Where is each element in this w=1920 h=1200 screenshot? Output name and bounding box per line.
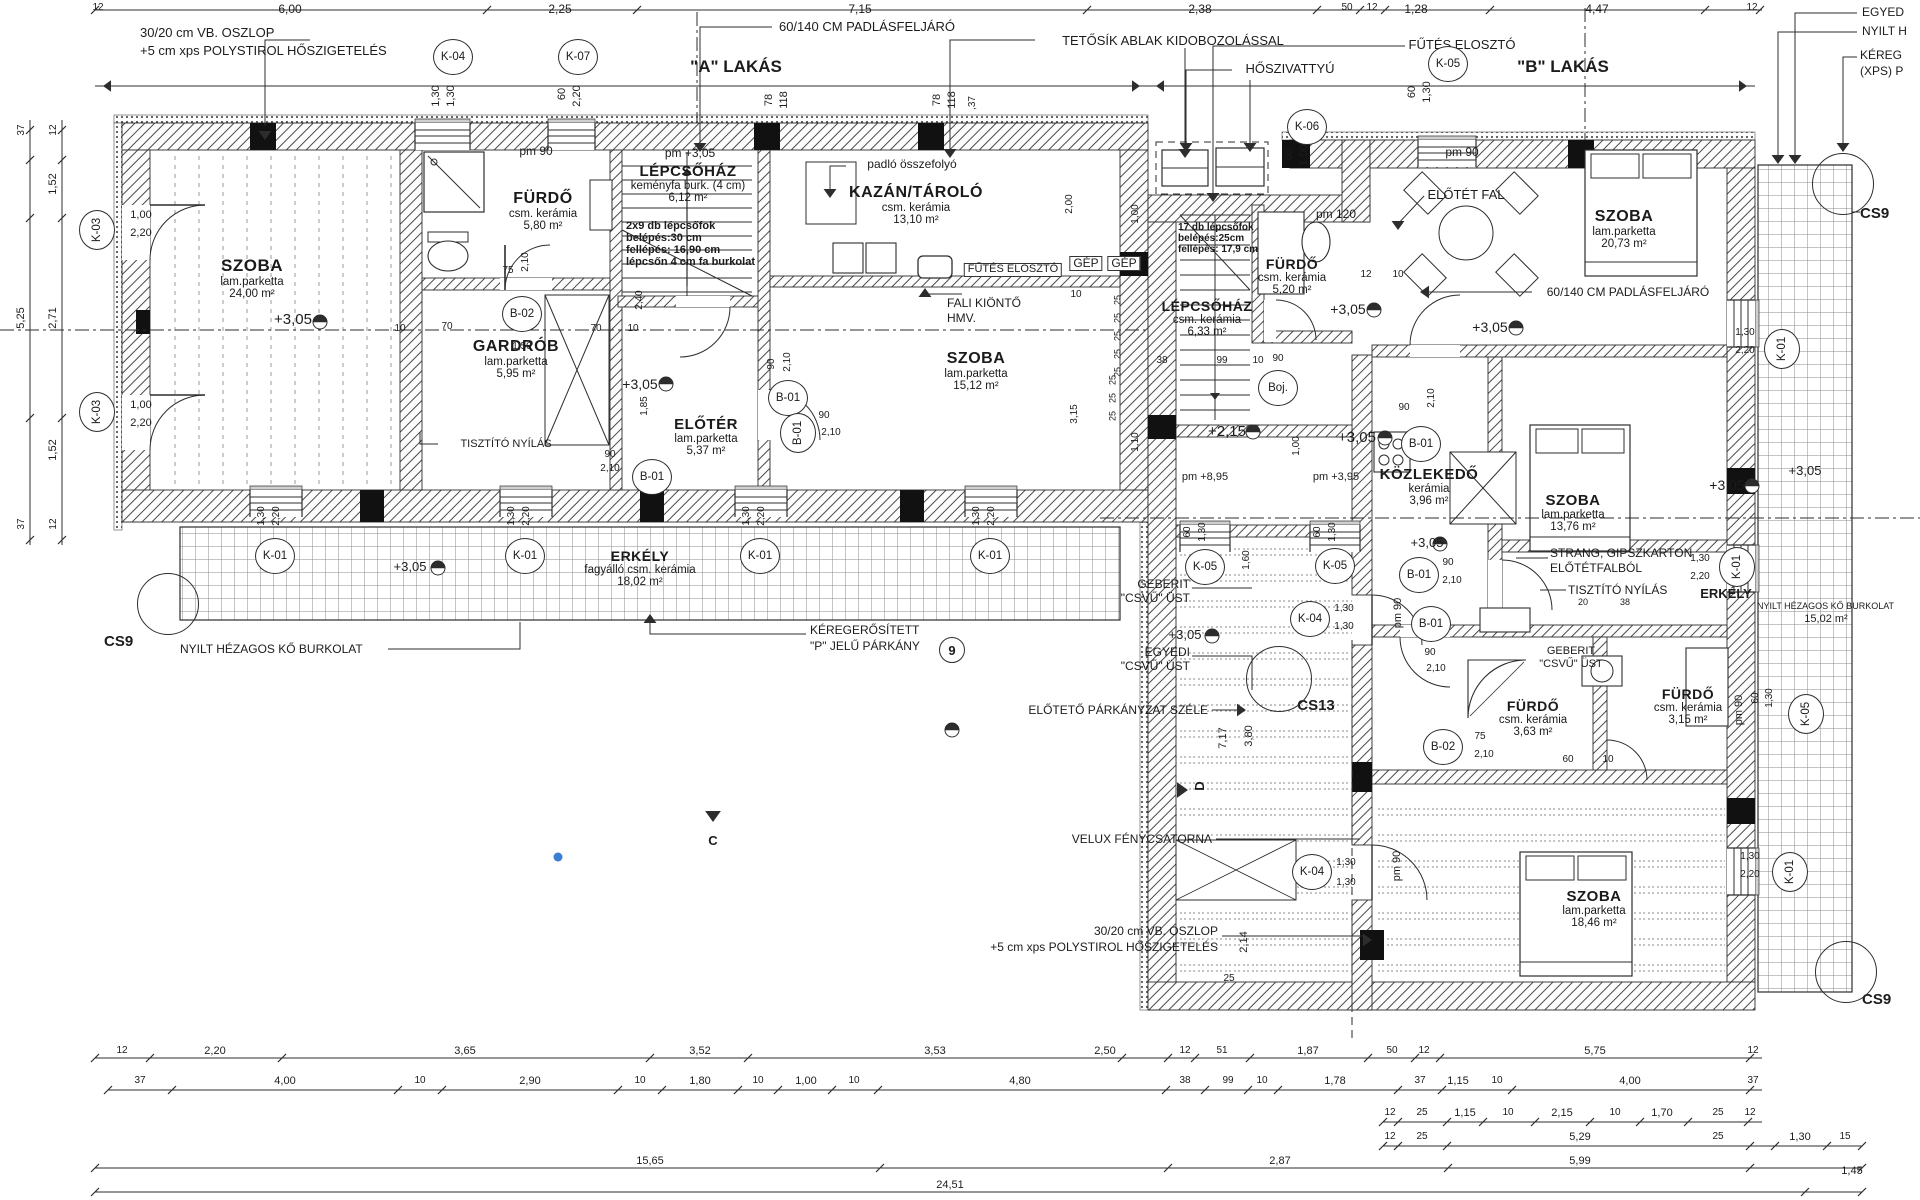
- reference-marker: B-01: [1399, 557, 1439, 593]
- room-name: SZOBA: [1592, 208, 1655, 226]
- annotation-label: 30/20 cm VB. OSZLOP: [1094, 925, 1218, 938]
- dimension-label: 90: [604, 450, 615, 461]
- dimension-label: 12: [1179, 1046, 1190, 1057]
- dimension-label: 118: [947, 91, 959, 109]
- dimension-label: 12: [1384, 1108, 1395, 1119]
- annotation-label: "CSVŰ" ÜST: [1121, 592, 1190, 605]
- dimension-label: 25: [1113, 331, 1122, 341]
- reference-marker: K-05: [1185, 549, 1225, 585]
- dimension-label: 2,20: [130, 418, 151, 430]
- stair-note-line: fellépés: 16,90 cm: [626, 244, 755, 256]
- dimension-label: 10: [1491, 1076, 1502, 1087]
- dimension-label: 25: [1712, 1132, 1723, 1143]
- dimension-label: 25: [1108, 393, 1117, 403]
- reference-marker: K-05: [1428, 46, 1468, 82]
- dimension-label: 10: [1602, 755, 1613, 766]
- dimension-label: 1,00: [1299, 144, 1311, 165]
- dimension-label: 15: [1839, 1132, 1850, 1143]
- annotation-label: HMV.: [947, 312, 976, 325]
- annotation-label: pm +3,95: [1313, 472, 1359, 484]
- dimension-label: 99: [1222, 1076, 1233, 1087]
- dimension-label: pm 90: [1393, 598, 1405, 629]
- dimension-label: 3,53: [924, 1046, 945, 1058]
- dimension-label: 75: [1474, 732, 1485, 743]
- annotation-label: "CSVŰ" ÜST: [1121, 660, 1190, 673]
- annotation-label: ERKÉLY: [1700, 587, 1752, 601]
- annotation-label: +3,05: [1709, 478, 1744, 493]
- dimension-label: 1,15: [1454, 1108, 1475, 1120]
- annotation-label: 2,38: [1188, 3, 1211, 16]
- annotation-label: GÉP: [1069, 256, 1102, 271]
- dimension-label: 1,78: [1324, 1076, 1345, 1088]
- room-area: 6,12 m²: [631, 192, 745, 204]
- dimension-label: 1,30: [1789, 1132, 1810, 1144]
- detail-circle: [1815, 941, 1877, 1003]
- dimension-label: 2,10: [1474, 750, 1493, 761]
- room-name: SZOBA: [944, 350, 1007, 368]
- reference-marker: K-05: [1315, 548, 1355, 584]
- dimension-label: 1,52: [48, 439, 60, 460]
- annotation-label: "A" LAKÁS: [690, 58, 782, 76]
- annotation-label: 12: [1746, 3, 1757, 14]
- annotation-label: EGYED: [1862, 6, 1904, 19]
- dimension-label: 2,20: [757, 506, 768, 525]
- dimension-label: 70: [441, 322, 452, 333]
- annotation-label: HŐSZIVATTYÚ: [1245, 62, 1334, 76]
- dimension-label: 1,30: [1735, 328, 1754, 339]
- dimension-label: 25: [1223, 974, 1234, 985]
- room-name: LÉPCSŐHÁZ: [1162, 298, 1253, 314]
- dimension-label: 25: [1416, 1132, 1427, 1143]
- dimension-label: 12: [116, 1046, 127, 1057]
- dimension-label: 1,00: [795, 1076, 816, 1088]
- dimension-label: 2,10: [1442, 576, 1461, 587]
- room-label: SZOBAlam.parketta18,46 m²: [1562, 888, 1625, 929]
- annotation-label: pm 90: [1445, 146, 1478, 159]
- dimension-label: 24,51: [936, 1180, 964, 1192]
- dimension-label: 37: [17, 518, 28, 529]
- dimension-label: 3,52: [689, 1046, 710, 1058]
- annotation-label: +5 cm xps POLYSTIROL HŐSZIGETELÉS: [990, 941, 1218, 954]
- room-area: 13,76 m²: [1541, 521, 1604, 533]
- stair-note: 17 db lépcsőfokbelépés:25cmfellépés: 17,…: [1178, 222, 1258, 255]
- dimension-label: 2,87: [1269, 1156, 1290, 1168]
- dimension-label: 1,30: [431, 85, 443, 106]
- dimension-label: 1,00: [1131, 204, 1142, 223]
- dimension-label: 2,20: [987, 506, 998, 525]
- dimension-label: 10: [1070, 290, 1081, 301]
- dimension-label: 25: [1113, 295, 1122, 305]
- dimension-label: 1,30: [1765, 688, 1776, 707]
- room-area: 5,37 m²: [674, 445, 738, 457]
- dimension-label: 2,90: [519, 1076, 540, 1088]
- annotation-label: "CSVŰ" ÜST: [1539, 659, 1602, 671]
- blue-dot: [554, 853, 563, 862]
- reference-marker: B-01: [1411, 606, 1451, 642]
- annotation-label: GEBERIT: [1137, 578, 1190, 591]
- dimension-label: 25: [1108, 375, 1117, 385]
- room-label: KÖZLEKEDŐkerámia3,96 m²: [1380, 466, 1479, 507]
- annotation-label: 12: [92, 3, 103, 14]
- dimension-label: 2,20: [1690, 572, 1709, 583]
- dimension-label: 2,10: [783, 352, 794, 371]
- room-name: KÖZLEKEDŐ: [1380, 466, 1479, 483]
- reference-marker: K-03: [79, 392, 115, 432]
- reference-marker: K-04: [1290, 601, 1330, 637]
- detail-circle: [137, 573, 199, 635]
- dimension-label: 78: [932, 94, 944, 106]
- annotation-label: pm 120: [1316, 208, 1356, 221]
- room-finish: kerámia: [1380, 483, 1479, 495]
- annotation-label: GÉP: [1107, 256, 1140, 271]
- room-area: 18,02 m²: [584, 576, 695, 588]
- dimension-label: 2,20: [272, 506, 283, 525]
- dimension-label: 1,85: [640, 396, 651, 415]
- reference-marker: B-01: [768, 380, 808, 416]
- dimension-label: 12: [1360, 270, 1371, 281]
- annotation-label: CS9: [1860, 206, 1889, 222]
- dimension-label: 99: [1216, 356, 1227, 367]
- dimension-label: 10: [634, 1076, 645, 1087]
- dimension-label: 25: [1108, 411, 1117, 421]
- dimension-label: 2,14: [1239, 931, 1251, 952]
- dimension-label: 60: [1407, 86, 1419, 98]
- dimension-label: 75: [502, 266, 513, 277]
- dimension-label: 1,30: [1328, 522, 1339, 541]
- room-finish: lam.parketta: [674, 433, 738, 445]
- reference-marker: 9: [939, 637, 965, 663]
- dimension-label: 1,87: [1297, 1046, 1318, 1058]
- detail-circle: [1812, 153, 1874, 215]
- dimension-label: 60: [557, 88, 569, 100]
- room-area: 24,00 m²: [220, 288, 283, 300]
- dimension-label: 10: [1392, 270, 1403, 281]
- annotation-label: +3,05: [1472, 320, 1507, 335]
- room-area: 20,73 m²: [1592, 238, 1655, 250]
- room-name: ERKÉLY: [584, 548, 695, 564]
- dimension-label: 2,50: [1094, 1046, 1115, 1058]
- annotation-label: FALI KIÖNTŐ: [947, 297, 1021, 310]
- stair-note-line: lépcsőn 4 cm fa burkolat: [626, 256, 755, 268]
- dimension-label: 1,10: [1131, 432, 1142, 451]
- reference-marker: K-06: [1287, 109, 1327, 145]
- dimension-label: 3,65: [454, 1046, 475, 1058]
- annotation-label: TISZTÍTÓ NYÍLÁS: [460, 439, 551, 451]
- annotation-label: ELŐTETŐ PÁRKÁNYZAT SZÉLE: [1028, 704, 1208, 717]
- dimension-label: 5,29: [1569, 1132, 1590, 1144]
- dimension-label: 2,10: [521, 252, 532, 271]
- dimension-label: 60: [1183, 526, 1194, 537]
- room-area: 15,12 m²: [944, 380, 1007, 392]
- dimension-label: 60: [1313, 526, 1324, 537]
- dimension-label: 90: [767, 358, 778, 369]
- stair-note: 2x9 db lépcsőfokbelépés:30 cmfellépés: 1…: [626, 220, 755, 268]
- annotation-label: pm 90: [519, 145, 552, 158]
- annotation-label: 12: [1366, 3, 1377, 14]
- dimension-label: pm 90: [1734, 695, 1746, 726]
- dimension-label: 90: [1442, 558, 1453, 569]
- room-label: SZOBAlam.parketta15,12 m²: [944, 350, 1007, 392]
- room-label: ERKÉLYfagyálló csm. kerámia18,02 m²: [584, 548, 695, 588]
- annotation-label: (XPS) P: [1860, 65, 1903, 78]
- annotation-label: CS9: [104, 634, 133, 650]
- dimension-label: 4,80: [1009, 1076, 1030, 1088]
- dimension-label: 1,52: [48, 173, 60, 194]
- reference-marker: K-01: [1764, 329, 1800, 369]
- room-label: LÉPCSŐHÁZcsm. kerámia6,33 m²: [1162, 298, 1253, 338]
- dimension-label: 25: [1416, 1108, 1427, 1119]
- reference-marker: B-01: [632, 459, 672, 495]
- dimension-label: 90: [1424, 648, 1435, 659]
- dimension-label: 2,20: [1740, 870, 1759, 881]
- room-area: 5,80 m²: [509, 220, 577, 232]
- annotation-label: "P" JELŰ PÁRKÁNY: [810, 640, 920, 653]
- room-finish: lam.parketta: [473, 356, 559, 368]
- room-area: 3,63 m²: [1499, 726, 1567, 738]
- annotation-label: GEBERIT: [1547, 646, 1595, 658]
- dimension-label: pm 90: [1392, 851, 1404, 882]
- annotation-label: 4,47: [1585, 3, 1608, 16]
- dimension-label: 38: [1156, 356, 1167, 367]
- dimension-label: 1,30: [1198, 522, 1209, 541]
- dimension-label: 60: [1562, 755, 1573, 766]
- reference-marker: K-01: [255, 538, 295, 574]
- dimension-label: 1,60: [1242, 550, 1253, 569]
- dimension-label: 1,45: [1841, 1166, 1862, 1178]
- annotation-label: FŰTÉS ELOSZTÓ: [1409, 38, 1516, 52]
- dimension-label: 1,30: [742, 506, 753, 525]
- dimension-label: 2,40: [635, 290, 646, 309]
- dimension-label: 1,30: [1422, 81, 1434, 102]
- room-finish: lam.parketta: [220, 276, 283, 288]
- dimension-label: 1,00: [130, 400, 151, 412]
- annotation-label: D: [1193, 781, 1207, 790]
- reference-marker: B-02: [1423, 729, 1463, 765]
- reference-marker: K-01: [505, 538, 545, 574]
- dimension-label: 2,20: [1735, 346, 1754, 357]
- annotation-label: 15,02 m²: [1804, 614, 1847, 626]
- room-name: ELŐTÉR: [674, 416, 738, 433]
- room-label: SZOBAlam.parketta20,73 m²: [1592, 208, 1655, 250]
- reference-marker: K-05: [1788, 694, 1824, 734]
- dimension-label: 70: [590, 324, 601, 335]
- room-area: 18,46 m²: [1562, 917, 1625, 929]
- stair-note-line: 17 db lépcsőfok: [1178, 222, 1258, 233]
- dimension-label: 118: [779, 91, 791, 109]
- annotation-label: +3,05: [1411, 536, 1444, 550]
- dimension-label: 50: [1386, 1046, 1397, 1057]
- dimension-label: 20: [1578, 598, 1588, 607]
- dimension-label: 10: [394, 324, 405, 335]
- annotation-label: +3,05: [1789, 464, 1822, 478]
- room-label: KAZÁN/TÁROLÓcsm. kerámia13,10 m²: [849, 184, 983, 226]
- dimension-label: ,37: [968, 96, 979, 110]
- dimension-label: 1,30: [1336, 878, 1355, 889]
- room-label: SZOBAlam.parketta24,00 m²: [220, 256, 283, 300]
- dimension-label: 1,30: [1740, 852, 1759, 863]
- dimension-label: 2,10: [1426, 664, 1445, 675]
- dimension-label: 2,15: [1551, 1108, 1572, 1120]
- dimension-label: 10: [1609, 1108, 1620, 1119]
- room-name: LÉPCSŐHÁZ: [631, 163, 745, 180]
- annotation-label: NYILT HÉZAGOS KŐ BURKOLAT: [1757, 602, 1894, 611]
- dimension-label: 5,99: [1569, 1156, 1590, 1168]
- reference-marker: K-07: [558, 39, 598, 75]
- stair-note-line: belépés:25cm: [1178, 233, 1258, 244]
- room-label: FÜRDŐcsm. kerámia3,15 m²: [1654, 686, 1722, 726]
- annotation-label: +2,15: [1208, 424, 1246, 440]
- room-label: GARDRÓBlam.parketta5,95 m²: [473, 338, 559, 380]
- dimension-label: 12: [1418, 1046, 1429, 1057]
- dimension-label: 1,00: [130, 210, 151, 222]
- annotation-label: ELŐTÉTFALBÓL: [1550, 562, 1642, 575]
- annotation-label: VELUX FÉNYCSATORNA: [1072, 833, 1212, 846]
- room-name: SZOBA: [1541, 492, 1604, 509]
- annotation-label: +3,05: [1330, 302, 1365, 317]
- room-name: SZOBA: [220, 256, 283, 276]
- dimension-label: 10: [752, 1076, 763, 1087]
- dimension-label: 10: [848, 1076, 859, 1087]
- room-label: SZOBAlam.parketta13,76 m²: [1541, 492, 1604, 533]
- room-finish: csm. kerámia: [1162, 314, 1253, 326]
- dimension-label: 37: [1747, 1076, 1758, 1087]
- annotation-label: pm +8,95: [1182, 472, 1228, 484]
- dimension-label: 60: [1284, 149, 1296, 161]
- dimension-label: 10: [1252, 356, 1263, 367]
- detail-circle: [1246, 646, 1312, 712]
- dimension-label: 10: [627, 324, 638, 335]
- room-name: SZOBA: [1562, 888, 1625, 905]
- annotation-label: KÉREGERŐSÍTETT: [810, 624, 919, 637]
- dimension-label: 1,30: [1336, 858, 1355, 869]
- annotation-label: 7,15: [848, 3, 871, 16]
- room-label: FÜRDŐcsm. kerámia5,20 m²: [1258, 256, 1326, 296]
- dimension-label: 78: [764, 94, 776, 106]
- dimension-label: 38: [1179, 1076, 1190, 1087]
- dimension-label: 1,30: [1690, 554, 1709, 565]
- room-finish: csm. kerámia: [849, 202, 983, 214]
- dimension-label: 1,30: [507, 506, 518, 525]
- dimension-label: 12: [1747, 1046, 1758, 1057]
- reference-marker: K-01: [1719, 547, 1755, 587]
- dimension-label: 25: [1113, 349, 1122, 359]
- annotation-label: padló összefolyó: [867, 158, 956, 171]
- room-name: GARDRÓB: [473, 338, 559, 356]
- annotation-label: TETŐSÍK ABLAK KIDOBOZOLÁSSAL: [1062, 34, 1284, 48]
- dimension-label: 1,30: [446, 85, 458, 106]
- dimension-label: 38: [1620, 598, 1630, 607]
- annotation-label: C: [708, 834, 717, 848]
- room-finish: lam.parketta: [1541, 509, 1604, 521]
- room-area: 5,20 m²: [1258, 284, 1326, 296]
- room-finish: csm. kerámia: [1654, 702, 1722, 714]
- dimension-label: 60: [1751, 692, 1762, 703]
- reference-marker: K-04: [1292, 854, 1332, 890]
- annotation-label: +5 cm xps POLYSTIROL HŐSZIGETELÉS: [140, 44, 387, 58]
- annotation-label: FŰTÉS ELOSZTÓ: [964, 263, 1062, 277]
- dimension-label: 2,00: [1065, 194, 1076, 213]
- dimension-label: 37: [134, 1076, 145, 1087]
- dimension-label: 3,80: [1244, 725, 1256, 746]
- dimension-label: 2,10: [821, 428, 840, 439]
- annotation-label: NYILT HÉZAGOS KŐ BURKOLAT: [180, 643, 363, 656]
- room-finish: keményfa burk. (4 cm): [631, 180, 745, 192]
- room-name: FÜRDŐ: [1258, 256, 1326, 272]
- room-label: FÜRDŐcsm. kerámia5,80 m²: [509, 190, 577, 232]
- reference-marker: Boj.: [1258, 370, 1298, 406]
- dimension-label: 1,15: [1447, 1076, 1468, 1088]
- dimension-label: 2,20: [572, 85, 584, 106]
- room-label: FÜRDŐcsm. kerámia3,63 m²: [1499, 698, 1567, 738]
- reference-marker: K-03: [79, 210, 115, 250]
- reference-marker: K-01: [740, 538, 780, 574]
- dimension-label: 4,00: [274, 1076, 295, 1088]
- dimension-label: 51: [1216, 1046, 1227, 1057]
- room-name: KAZÁN/TÁROLÓ: [849, 184, 983, 202]
- reference-marker: K-04: [433, 39, 473, 75]
- dimension-label: 90: [1398, 403, 1409, 414]
- annotation-label: 30/20 cm VB. OSZLOP: [140, 26, 274, 40]
- dimension-label: 2,10: [600, 464, 619, 475]
- dimension-label: 2,20: [522, 506, 533, 525]
- dimension-label: 15,65: [636, 1156, 664, 1168]
- stair-note-line: belépés:30 cm: [626, 232, 755, 244]
- annotation-label: 2,25: [548, 3, 571, 16]
- annotation-label: 60/140 CM PADLÁSFELJÁRÓ: [1547, 286, 1710, 299]
- dimension-label: 10: [414, 1076, 425, 1087]
- annotation-label: +3,05: [394, 560, 427, 574]
- dimension-label: 1,00: [1292, 436, 1303, 455]
- room-finish: lam.parketta: [1592, 226, 1655, 238]
- dimension-label: 25: [1113, 313, 1122, 323]
- dimension-label: 4,00: [1619, 1076, 1640, 1088]
- room-finish: fagyálló csm. kerámia: [584, 564, 695, 576]
- stair-note-line: 2x9 db lépcsőfok: [626, 220, 755, 232]
- reference-marker: K-01: [970, 538, 1010, 574]
- room-name: FÜRDŐ: [1654, 686, 1722, 702]
- reference-marker: K-01: [1772, 852, 1808, 892]
- annotation-label: 6,00: [278, 3, 301, 16]
- dimension-label: 2,10: [1427, 388, 1438, 407]
- dimension-label: 3,15: [1070, 404, 1081, 423]
- room-area: 3,96 m²: [1380, 495, 1479, 507]
- room-label: LÉPCSŐHÁZkeményfa burk. (4 cm)6,12 m²: [631, 163, 745, 204]
- dimension-label: 5,25: [16, 307, 28, 328]
- annotation-label: STRANG, GIPSZKARTON: [1550, 547, 1692, 560]
- dimension-label: 12: [49, 518, 60, 529]
- room-area: 13,10 m²: [849, 214, 983, 226]
- dimension-label: 25: [1712, 1108, 1723, 1119]
- dimension-label: 12: [1744, 1108, 1755, 1119]
- room-finish: csm. kerámia: [509, 208, 577, 220]
- dimension-label: 90: [1272, 354, 1283, 365]
- annotation-label: pm +3,05: [665, 147, 715, 160]
- dimension-label: 1,70: [1651, 1108, 1672, 1120]
- room-area: 3,15 m²: [1654, 714, 1722, 726]
- dimension-label: 2,71: [48, 307, 60, 328]
- room-finish: lam.parketta: [1562, 905, 1625, 917]
- dimension-label: 1,30: [972, 506, 983, 525]
- dimension-label: 2,20: [130, 228, 151, 240]
- annotation-label: ELŐTÉT FAL: [1427, 188, 1504, 202]
- annotation-label: +3,05: [1338, 430, 1376, 446]
- annotation-label: "B" LAKÁS: [1517, 58, 1609, 76]
- annotation-label: +3,05: [622, 377, 657, 392]
- dimension-label: 7,17: [1218, 727, 1230, 748]
- annotation-label: EGYEDI: [1145, 646, 1190, 659]
- dimension-label: 5,75: [1584, 1046, 1605, 1058]
- dimension-label: 12: [1384, 1132, 1395, 1143]
